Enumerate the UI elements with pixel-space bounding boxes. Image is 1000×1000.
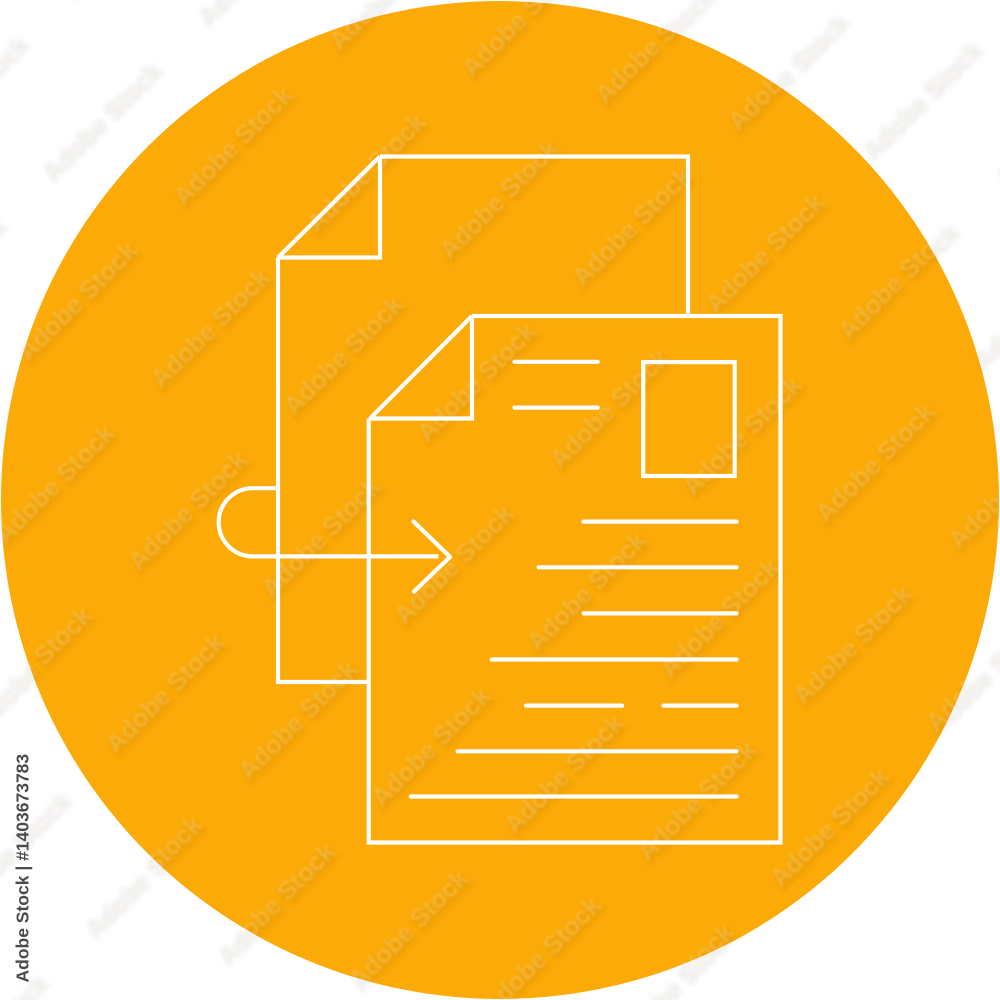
svg-text:Adobe Stock | #1403673783: Adobe Stock | #1403673783 (13, 754, 33, 983)
